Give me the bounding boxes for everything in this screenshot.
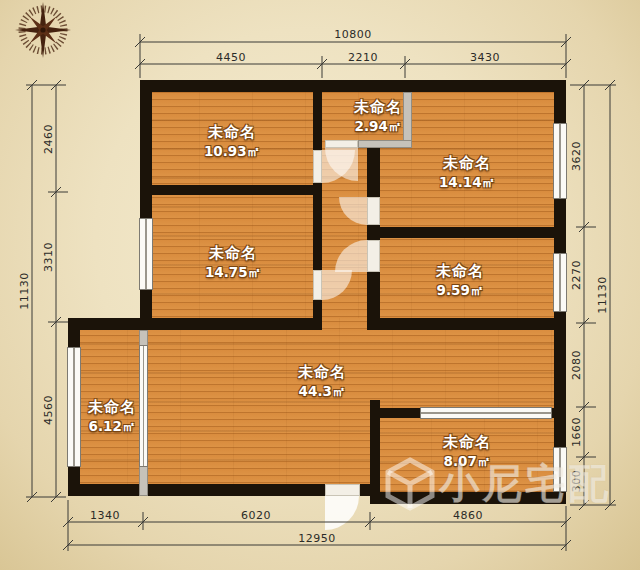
room-area: 9.59㎡ — [436, 281, 484, 299]
room-name: 未命名 — [205, 243, 261, 263]
room-area: 8.07㎡ — [443, 452, 491, 470]
room-label[interactable]: 未命名 44.3㎡ — [298, 362, 346, 400]
door-leaf — [313, 150, 322, 183]
room-label[interactable]: 未命名 9.59㎡ — [436, 261, 484, 299]
room-label[interactable]: 未命名 8.07㎡ — [443, 432, 491, 470]
wall — [140, 185, 322, 195]
wall — [140, 80, 566, 92]
dim-right-total: 11130 — [596, 276, 609, 314]
room-name: 未命名 — [204, 122, 260, 142]
room-area: 6.12㎡ — [88, 417, 136, 435]
wall — [140, 80, 152, 330]
room-label[interactable]: 未命名 6.12㎡ — [88, 397, 136, 435]
window — [553, 253, 567, 312]
floor-plan-canvas: { "title": "floor-plan", "rooms": [ {"na… — [0, 0, 640, 570]
wall — [550, 408, 566, 418]
dim-bottom-seg: 1340 — [90, 509, 120, 522]
dim-right-seg: 300 — [570, 470, 583, 493]
compass-icon — [13, 0, 73, 60]
room-label[interactable]: 未命名 14.75㎡ — [205, 243, 261, 281]
room-area: 44.3㎡ — [298, 382, 346, 400]
window — [139, 218, 153, 290]
room-area: 14.14㎡ — [439, 173, 495, 191]
partition — [358, 140, 412, 148]
dim-top-seg: 4450 — [216, 51, 246, 64]
dim-right-seg: 2080 — [570, 350, 583, 380]
wall — [367, 147, 380, 197]
dim-bottom-seg: 6020 — [241, 509, 271, 522]
dim-top-seg: 2210 — [348, 51, 378, 64]
wall — [367, 318, 566, 330]
dim-left-total: 11130 — [18, 272, 31, 310]
dim-right-seg: 2270 — [570, 260, 583, 290]
room-area: 2.94㎡ — [354, 117, 402, 135]
wall — [313, 80, 322, 150]
dim-bottom-seg: 4860 — [453, 509, 483, 522]
wall — [370, 408, 420, 418]
dim-bottom-total: 12950 — [298, 532, 336, 545]
room-name: 未命名 — [88, 397, 136, 417]
dim-right-seg: 3620 — [570, 141, 583, 171]
window — [420, 407, 552, 419]
room-label[interactable]: 未命名 2.94㎡ — [354, 97, 402, 135]
wall — [370, 492, 566, 504]
window — [553, 123, 567, 199]
room-label[interactable]: 未命名 10.93㎡ — [204, 122, 260, 160]
dim-left-seg: 2460 — [42, 124, 55, 154]
wall — [313, 183, 322, 270]
door-leaf — [367, 197, 380, 225]
room-area: 14.75㎡ — [205, 263, 261, 281]
dim-left-seg: 4560 — [42, 395, 55, 425]
room-name: 未命名 — [443, 432, 491, 452]
room-name: 未命名 — [439, 153, 495, 173]
sliding-door — [139, 345, 148, 467]
room-label[interactable]: 未命名 14.14㎡ — [439, 153, 495, 191]
room-name: 未命名 — [436, 261, 484, 281]
door-leaf — [325, 484, 360, 496]
door-leaf — [313, 270, 322, 300]
wall — [313, 300, 322, 330]
room-name: 未命名 — [354, 97, 402, 117]
door-leaf — [367, 240, 380, 272]
wall — [367, 227, 566, 238]
dim-left-seg: 3310 — [42, 242, 55, 272]
wall — [68, 318, 322, 330]
dim-right-seg: 1660 — [570, 417, 583, 447]
dim-top-seg: 3430 — [470, 51, 500, 64]
dim-top-total: 10800 — [334, 28, 372, 41]
room-area: 10.93㎡ — [204, 142, 260, 160]
door-leaf — [325, 140, 358, 148]
door-arc — [325, 496, 359, 530]
window — [553, 447, 567, 492]
room-name: 未命名 — [298, 362, 346, 382]
window — [67, 347, 81, 467]
wall — [68, 484, 325, 496]
